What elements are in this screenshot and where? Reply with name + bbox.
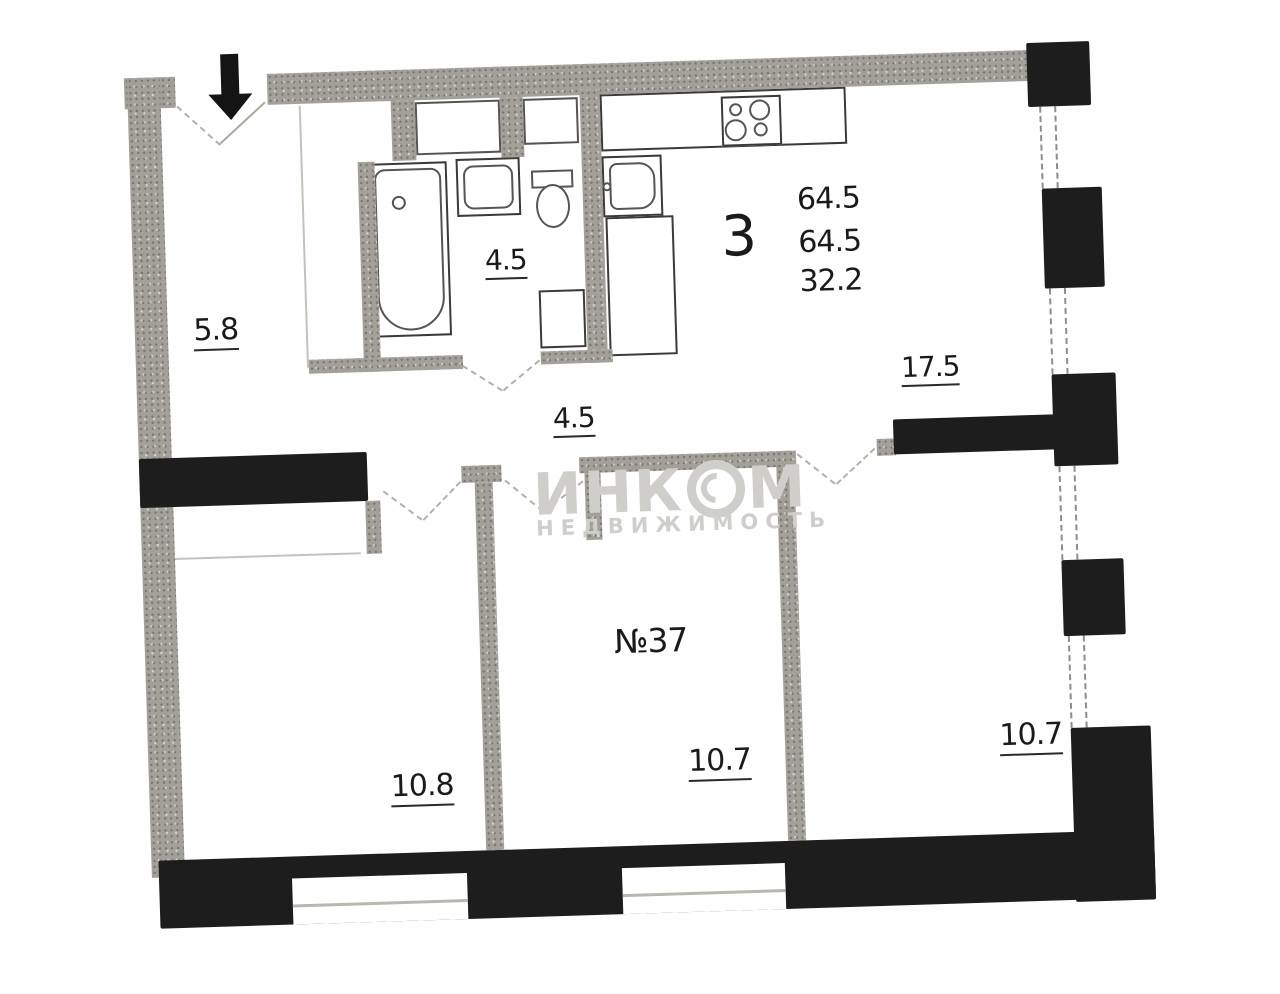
facade-column-4 <box>1061 558 1125 636</box>
facade-column-bottom-corner <box>1071 725 1156 901</box>
wall-shaft-left-chunk <box>391 100 417 161</box>
window-glazing-line <box>1064 288 1069 374</box>
ventilation-shaft <box>415 100 502 156</box>
wall-bathroom-bottom-right <box>541 349 613 364</box>
window-bedroom-left <box>292 873 468 924</box>
bedroom-left-door-swing <box>423 481 461 521</box>
wall-bedroom-left-middle <box>475 482 505 850</box>
floor-plan-page: ИНКМ НЕДВИЖИМОСТЬ 5.8 4.5 4.5 17.5 10.8 … <box>0 0 1280 994</box>
entrance-arrow-head-icon <box>208 93 253 120</box>
kitchen-sink-basin <box>609 162 656 210</box>
apartment-living-plus-total: 64.5 <box>798 223 862 260</box>
apartment-total-area: 64.5 <box>796 180 860 217</box>
bedroom-right-door-swing <box>836 448 875 485</box>
window-bedroom-middle <box>622 863 786 914</box>
room-area-hallway: 5.8 <box>193 312 239 348</box>
wall-bathroom-bottom <box>309 355 463 374</box>
wall-stub-bedroom-left-door <box>365 501 382 554</box>
room-area-living-room: 17.5 <box>901 349 960 384</box>
hallway-zone-line <box>299 106 309 368</box>
bedroom-left-door-swing <box>383 490 423 520</box>
entrance-arrow-icon <box>220 54 239 97</box>
toilet-bowl <box>535 183 570 228</box>
window-glazing-line <box>1058 466 1063 560</box>
window-glazing-line <box>1054 106 1059 188</box>
room-area-bedroom-left: 10.8 <box>390 767 454 804</box>
room-area-bedroom-right: 10.7 <box>999 716 1063 753</box>
ventilation-shaft <box>523 97 579 145</box>
room-area-bedroom-middle: 10.7 <box>688 742 752 779</box>
bathroom-door-swing <box>503 360 540 392</box>
bathtub-basin <box>374 167 446 331</box>
window-glazing-line <box>1039 107 1044 189</box>
floor-plan: ИНКМ НЕДВИЖИМОСТЬ 5.8 4.5 4.5 17.5 10.8 … <box>122 39 1184 941</box>
window-glazing-line <box>1049 288 1054 374</box>
wall-shaft-mid-chunk <box>500 97 525 158</box>
bathroom-door-swing <box>462 365 503 392</box>
window-glazing-line <box>1073 466 1078 560</box>
washing-machine <box>539 289 587 348</box>
wardrobe-line <box>147 552 361 561</box>
apartment-living-area: 32.2 <box>799 262 863 299</box>
wall-tcap-partition <box>461 465 502 483</box>
unit-number: №37 <box>613 620 688 661</box>
window-glazing-line <box>1068 636 1073 728</box>
wall-bedroom-right-north <box>893 414 1069 454</box>
apartment-rooms-count: 3 <box>720 204 756 270</box>
bathroom-sink-basin <box>463 164 514 210</box>
facade-column-top-corner <box>1026 41 1091 107</box>
room-area-corridor: 4.5 <box>552 401 595 435</box>
room-area-bathroom: 4.5 <box>484 243 527 277</box>
wall-bedroom-left-north <box>139 452 368 508</box>
facade-column-2 <box>1042 187 1105 289</box>
window-glazing-line <box>1083 635 1088 727</box>
kitchen-counter-side <box>605 215 677 356</box>
